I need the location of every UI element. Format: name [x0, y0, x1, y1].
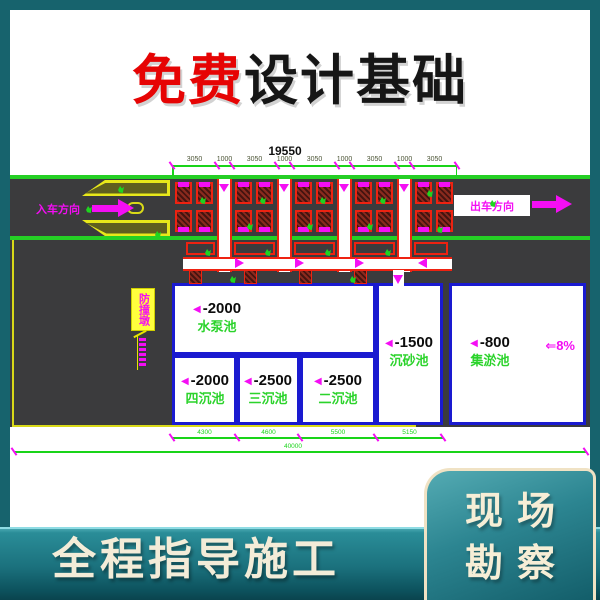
flow-arrow-right: [235, 258, 244, 268]
dim-line-bottom: [172, 437, 443, 439]
pool-settle3: ◀-2500 三沉池: [237, 355, 300, 425]
depth-marker-icon: ◀: [181, 376, 189, 387]
vertical-note: [139, 338, 146, 368]
flow-arrow-down: [399, 184, 409, 192]
dim-segment-label: 1000: [211, 156, 239, 163]
exit-arrow-head: [556, 195, 572, 213]
pool-settle2-name: 二沉池: [311, 391, 365, 407]
depth-marker-icon: ◀: [470, 338, 478, 349]
dim-segment-label: 1000: [331, 156, 359, 163]
dim-segment-label: 4600: [254, 430, 284, 437]
corner-card-line1: 现场: [451, 486, 569, 538]
flow-arrow-right: [295, 258, 304, 268]
site-edge-yellow-bottom: [12, 425, 416, 427]
dim-segment-label: 3050: [181, 156, 209, 163]
grate-cap: [379, 182, 390, 187]
dim-segment-label: 3050: [241, 156, 269, 163]
grate-cap: [379, 227, 390, 232]
site-edge-yellow-left: [12, 240, 14, 427]
flow-arrow-down: [339, 184, 349, 192]
grate-cap: [439, 182, 450, 187]
inlet-stub: [354, 270, 367, 284]
title-banner: 免费设计基础: [10, 10, 590, 140]
flow-arrow-right: [355, 258, 364, 268]
grate-cap: [358, 182, 369, 187]
dim-segment-label: 1000: [391, 156, 419, 163]
pool-pump-depth: -2000: [203, 300, 241, 317]
dim-line-overall: [14, 451, 586, 453]
grate-cap: [178, 227, 189, 232]
grate-cap: [298, 227, 309, 232]
pool-grit-depth: -1500: [395, 334, 433, 351]
title-highlight: 免费: [132, 51, 244, 111]
grate-cap: [418, 227, 429, 232]
pool-grit: ◀-1500 沉砂池: [376, 283, 443, 425]
pool-settle2: ◀-2500 二沉池: [300, 355, 376, 425]
pool-settle4: ◀-2000 四沉池: [172, 355, 237, 425]
drain-channel-horizontal: [183, 257, 452, 271]
pool-settle2-depth: -2500: [324, 372, 362, 389]
pool-grit-name: 沉砂池: [381, 353, 437, 369]
flow-arrow-left: [418, 258, 427, 268]
grate-cap: [238, 227, 249, 232]
dim-segment-label: 3050: [421, 156, 449, 163]
side-tag: 防撞墩: [131, 288, 155, 331]
depth-marker-icon: ◀: [314, 376, 322, 387]
entry-arrow-head: [118, 199, 134, 217]
grate-cap: [199, 227, 210, 232]
collector-box: [186, 242, 215, 255]
grate-cap: [238, 182, 249, 187]
dim-segment-label: 4300: [190, 430, 220, 437]
pool-sludge: ◀-800 集淤池 ⇐8%: [449, 283, 586, 425]
side-tag-label: 防撞墩: [138, 293, 149, 326]
depth-marker-icon: ◀: [193, 304, 201, 315]
grate-cap: [298, 182, 309, 187]
footer-strip-text: 全程指导施工: [52, 527, 340, 593]
pool-settle3-name: 三沉池: [243, 391, 293, 407]
pool-settle4-depth: -2000: [191, 372, 229, 389]
pool-pump: ◀-2000 水泵池: [172, 283, 376, 355]
pool-sludge-name: 集淤池: [462, 353, 518, 369]
grate-cap: [358, 227, 369, 232]
slope-label: ⇐8%: [545, 338, 575, 354]
grate-cap: [319, 227, 330, 232]
dim-segment-label: 1000: [271, 156, 299, 163]
grit-drain-arrow: [393, 275, 403, 284]
flow-arrow-down: [279, 184, 289, 192]
title-rest: 设计基础: [244, 51, 468, 111]
depth-marker-icon: ◀: [244, 376, 252, 387]
dim-segment-label: 5150: [395, 430, 425, 437]
grate-cap: [259, 182, 270, 187]
inlet-stub: [299, 270, 312, 284]
vertical-note-line: [137, 336, 138, 370]
grate-cap: [259, 227, 270, 232]
dim-segment-label: 3050: [361, 156, 389, 163]
pool-settle3-depth: -2500: [254, 372, 292, 389]
promo-image: 免费设计基础 19550 入车方向 出车方向 ◀-2000 水泵池 ◀-2000…: [0, 0, 600, 600]
inlet-stub: [244, 270, 257, 284]
inlet-stub: [189, 270, 202, 284]
dim-segment-label: 5500: [323, 430, 353, 437]
pool-settle4-name: 四沉池: [179, 391, 231, 407]
pool-sludge-depth: -800: [480, 334, 510, 351]
dim-total-bottom: 40000: [273, 443, 313, 450]
grate-cap: [178, 182, 189, 187]
pool-pump-name: 水泵池: [193, 319, 241, 335]
entry-arrow: [92, 205, 118, 212]
dim-segment-label: 3050: [301, 156, 329, 163]
corner-card-line2: 勘察: [451, 538, 569, 590]
corner-card: 现场 勘察: [424, 468, 596, 600]
grate-cap: [199, 182, 210, 187]
page-title: 免费设计基础: [132, 36, 468, 115]
depth-marker-icon: ◀: [385, 338, 393, 349]
exit-arrow: [532, 201, 556, 208]
entry-direction-label: 入车方向: [36, 201, 80, 217]
flow-arrow-down: [219, 184, 229, 192]
collector-box: [414, 242, 448, 255]
grate-cap: [418, 182, 429, 187]
grate-cap: [319, 182, 330, 187]
